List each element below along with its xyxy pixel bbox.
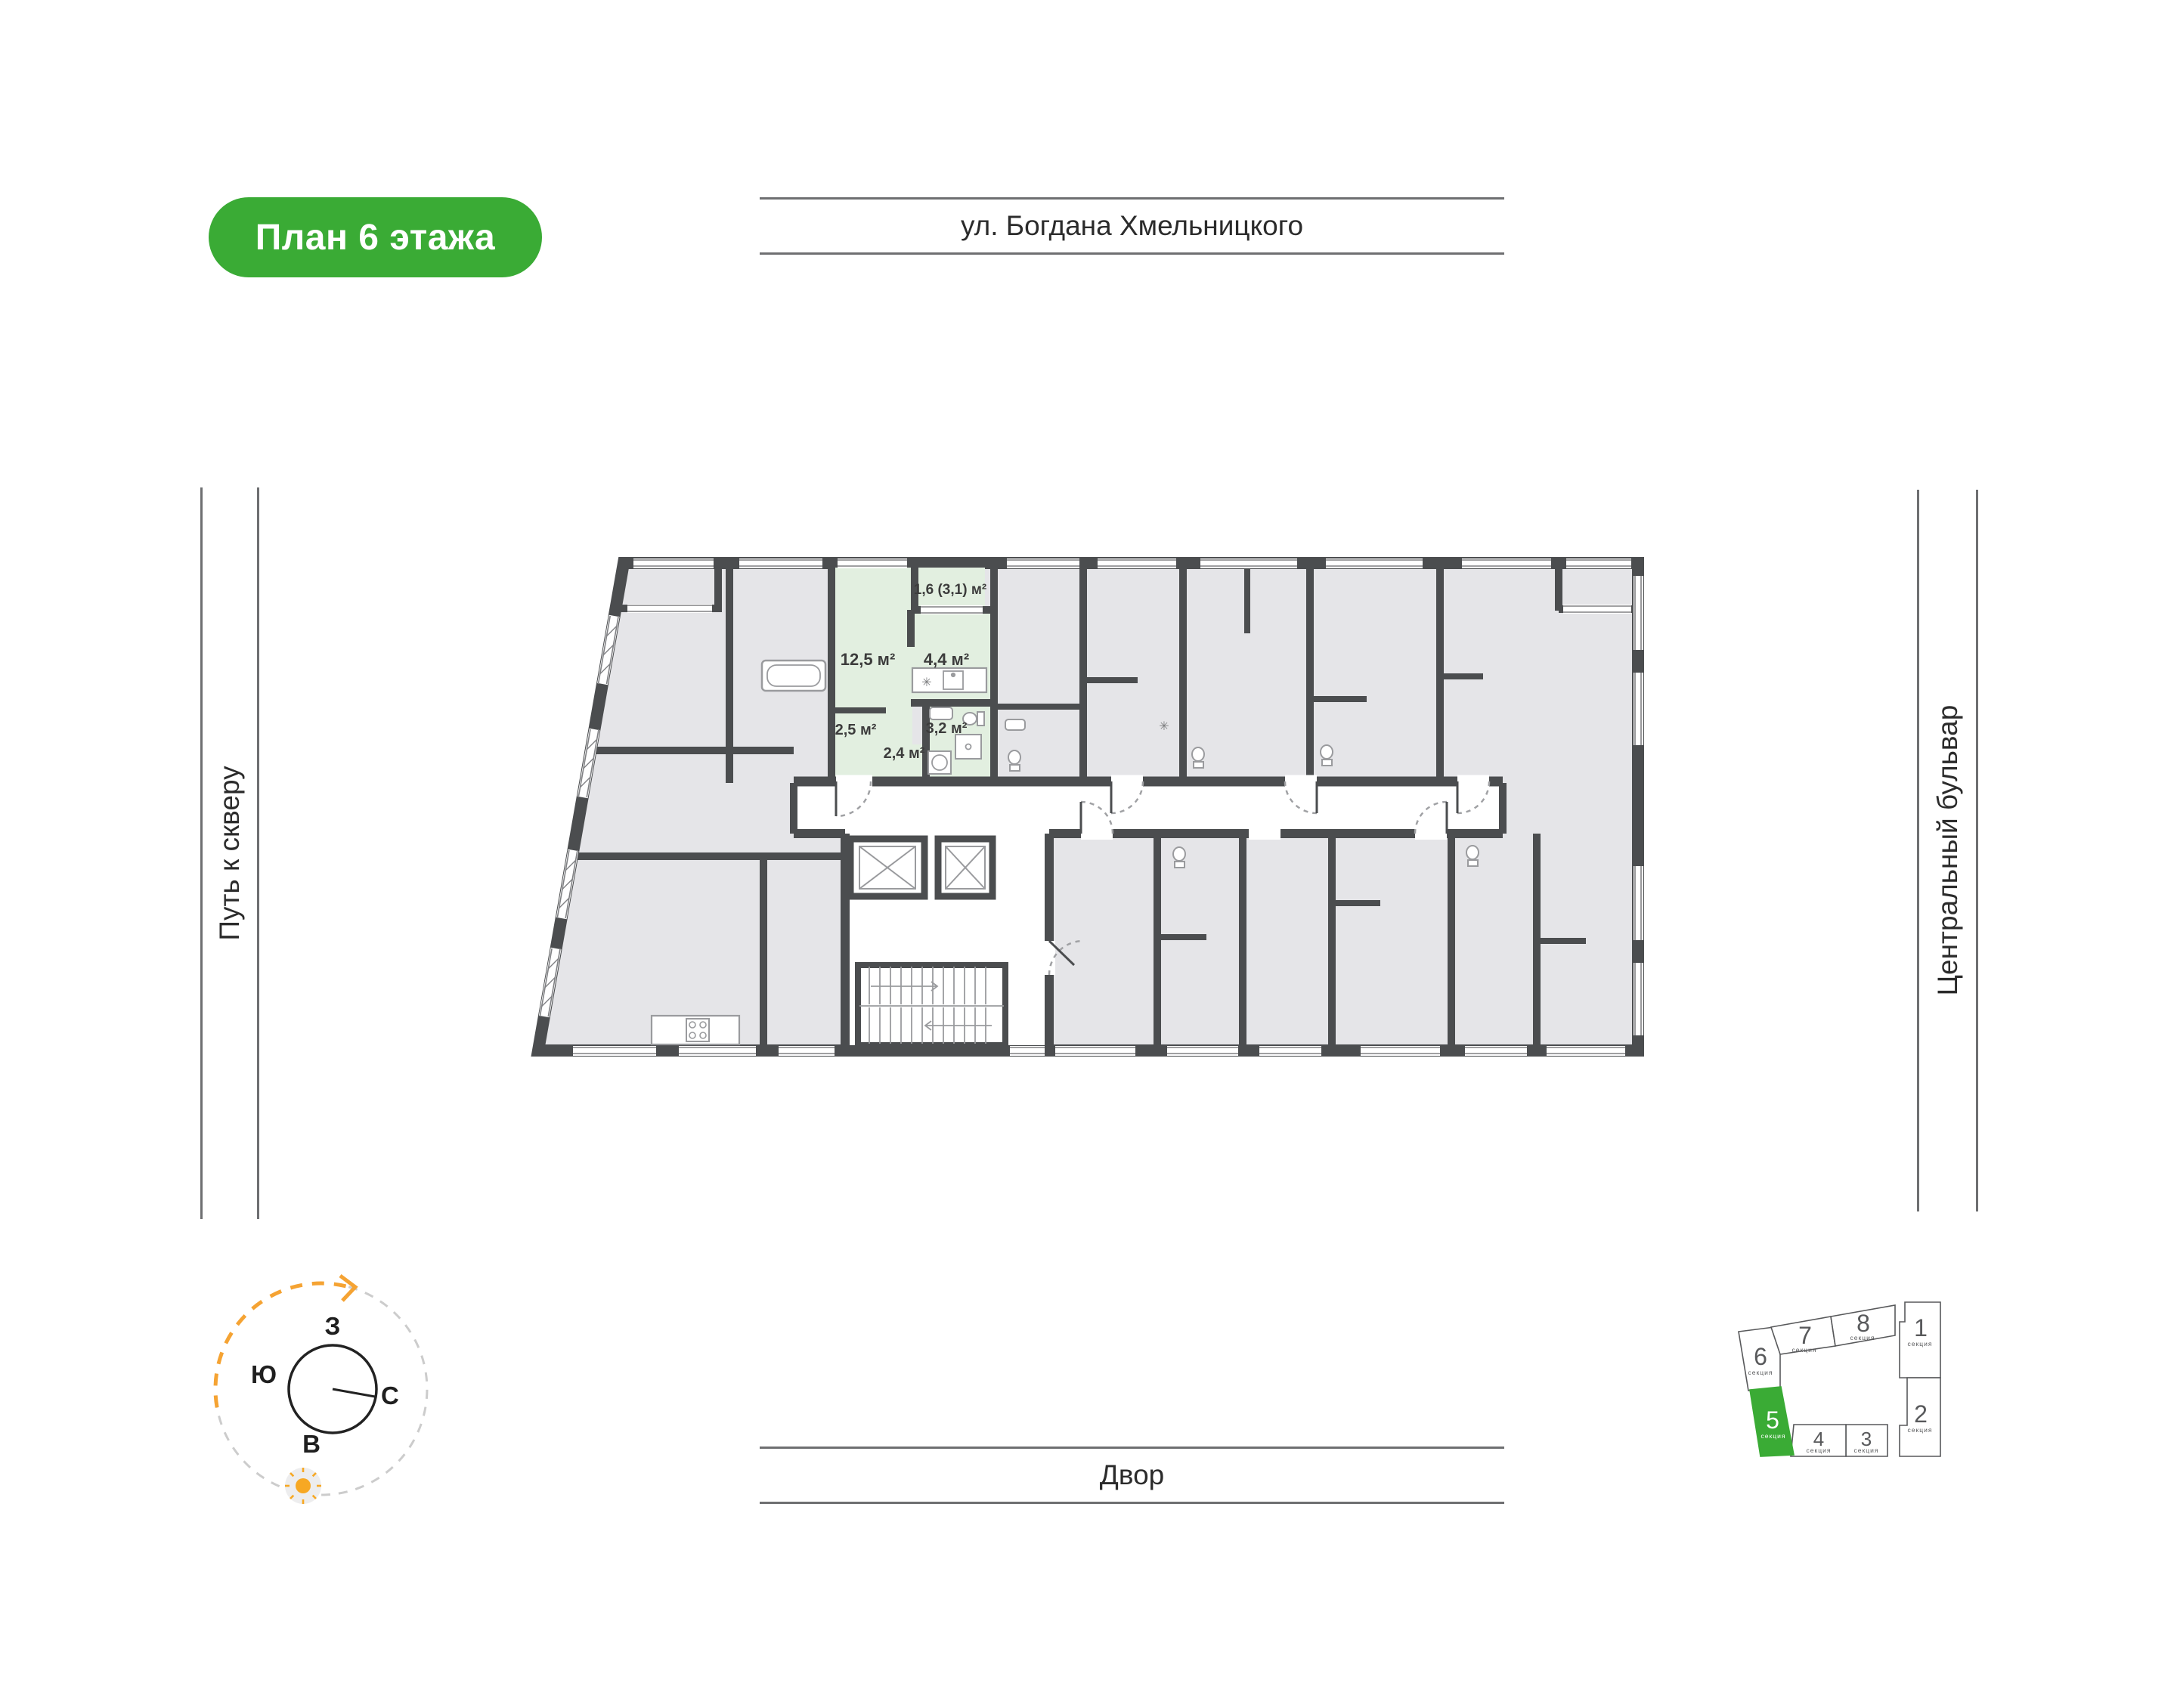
street-left-line-1 <box>200 487 203 1219</box>
street-bottom-label: Двор <box>760 1449 1504 1502</box>
svg-text:6: 6 <box>1754 1343 1767 1370</box>
section-minimap: 6 7 8 1 2 3 4 секция секция секция секци… <box>1723 1296 1950 1466</box>
street-right-label: Центральный бульвар <box>1928 586 1968 1115</box>
compass-west: З <box>325 1312 341 1340</box>
svg-text:1: 1 <box>1914 1314 1928 1341</box>
street-left-line-2 <box>257 487 259 1219</box>
svg-text:секция: секция <box>1850 1334 1875 1341</box>
fridge-mark: ✳ <box>921 676 931 689</box>
street-right-line-2 <box>1976 490 1978 1211</box>
street-right-line-1 <box>1917 490 1919 1211</box>
label-hall: 2,5 м² <box>835 722 877 738</box>
label-balcony: 1,6 (3,1) м² <box>914 582 986 598</box>
shower-icon <box>955 735 981 759</box>
compass-east: В <box>302 1430 321 1458</box>
compass-south: Ю <box>251 1360 277 1388</box>
label-living: 12,5 м² <box>841 650 896 669</box>
svg-text:секция: секция <box>1807 1447 1832 1454</box>
street-bottom: Двор <box>760 1447 1504 1504</box>
floor-badge: План 6 этажа <box>209 197 542 277</box>
windows-bottom <box>573 1046 1625 1056</box>
svg-text:секция: секция <box>1908 1340 1933 1348</box>
street-left-label: Путь к скверу <box>209 589 250 1118</box>
svg-text:секция: секция <box>1908 1426 1933 1434</box>
street-top: ул. Богдана Хмельницкого <box>760 197 1504 255</box>
floor-plan: ✳ ✳ 1,6 (3,1) м² 12,5 м² 4,4 м² 2,5 м² 3… <box>529 554 1678 1062</box>
sun-icon <box>285 1468 321 1504</box>
toilet-icon <box>977 712 984 726</box>
label-bathroom: 3,2 м² <box>926 720 968 737</box>
compass-north: С <box>381 1382 399 1409</box>
svg-text:8: 8 <box>1856 1310 1870 1337</box>
compass: З Ю С В <box>200 1270 450 1527</box>
sun-path-arrow-icon <box>340 1276 355 1301</box>
stairs <box>858 965 1005 1045</box>
sink-icon <box>930 707 952 719</box>
page: План 6 этажа ул. Богдана Хмельницкого Дв… <box>0 0 2177 1708</box>
elevators <box>850 839 993 896</box>
floor-badge-label: План 6 этажа <box>255 217 495 258</box>
svg-text:секция: секция <box>1854 1447 1879 1454</box>
label-kitchen: 4,4 м² <box>924 650 969 669</box>
svg-text:секция: секция <box>1761 1432 1786 1440</box>
street-bottom-line-2 <box>760 1502 1504 1504</box>
svg-text:2: 2 <box>1914 1400 1928 1428</box>
fridge-mark-2: ✳ <box>1159 720 1169 733</box>
svg-text:5: 5 <box>1766 1406 1779 1434</box>
svg-text:секция: секция <box>1792 1346 1817 1354</box>
label-corridor: 2,4 м² <box>884 745 925 762</box>
svg-text:секция: секция <box>1748 1369 1773 1376</box>
street-top-line-2 <box>760 252 1504 255</box>
svg-text:7: 7 <box>1798 1322 1812 1349</box>
street-top-label: ул. Богдана Хмельницкого <box>760 200 1504 252</box>
